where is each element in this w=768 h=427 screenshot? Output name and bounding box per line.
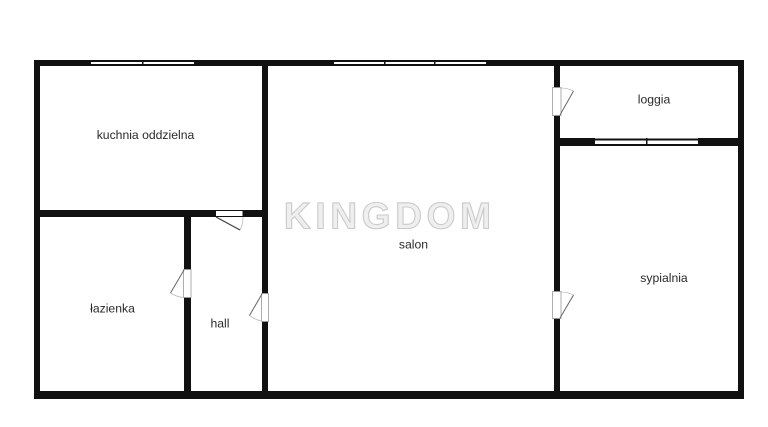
svg-text:kuchnia oddzielna: kuchnia oddzielna xyxy=(97,128,195,142)
svg-text:hall: hall xyxy=(211,317,230,331)
svg-text:salon: salon xyxy=(399,238,428,252)
svg-text:loggia: loggia xyxy=(638,93,671,107)
svg-text:łazienka: łazienka xyxy=(90,302,135,316)
svg-text:sypialnia: sypialnia xyxy=(640,271,688,285)
svg-text:KINGDOM: KINGDOM xyxy=(284,196,496,237)
